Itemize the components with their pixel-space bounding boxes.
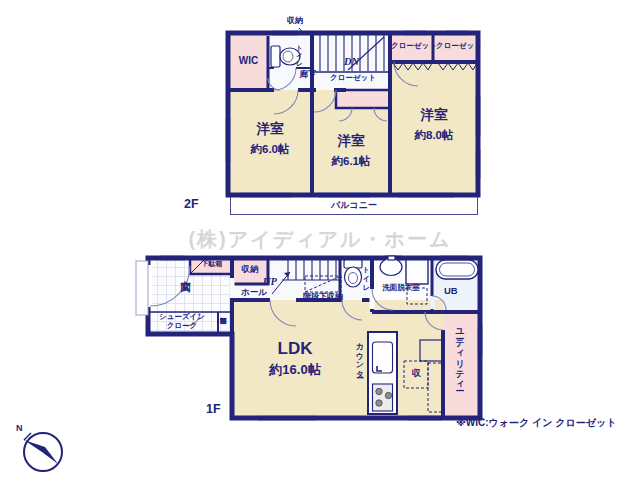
toilet-1f-label: トイレ	[362, 261, 370, 288]
stairs-dn-label: DN	[344, 56, 359, 68]
watermark: (株)アイディアル・ホーム	[170, 226, 470, 253]
staircase-1f	[272, 260, 341, 294]
compass-icon	[24, 433, 62, 471]
counter-label: カウンター	[354, 337, 363, 373]
shoe-cabinet-label: 下駄箱	[191, 260, 233, 268]
hall-label: ホール	[233, 288, 275, 298]
storage-2f-label: 収納	[278, 17, 312, 26]
entrance-label: 玄関	[180, 273, 191, 275]
bath-label: UB	[444, 286, 458, 297]
porch-step	[136, 261, 148, 315]
floor2-label: 2F	[184, 197, 199, 211]
bedroom-left-name: 洋室	[228, 121, 312, 136]
bedroom-center-size: 約6.1帖	[312, 155, 390, 168]
storage-small-label: 収	[405, 368, 427, 378]
balcony-label: バルコニー	[300, 200, 408, 210]
under-stair-storage-label: 階段下収納	[293, 293, 353, 302]
shoes-closet-label-2: クローク	[148, 322, 216, 330]
utility-label: ユーティリティー	[455, 323, 465, 385]
equipment-outlines	[404, 259, 443, 412]
closet-right-1-label: クローゼット	[391, 42, 432, 50]
kitchen-icon	[368, 332, 397, 414]
ldk-name: LDK	[250, 339, 340, 358]
bedroom-center-name: 洋室	[312, 133, 390, 148]
walls	[148, 28, 480, 418]
storage-1f-label: 収納	[232, 265, 268, 275]
bedroom-left-size: 約6.0帖	[228, 143, 312, 156]
bedroom-right-size: 約8.0帖	[390, 129, 478, 142]
bathtub-icon	[436, 260, 478, 279]
closet-right-2-label: クローゼット	[436, 42, 477, 50]
wic-footnote: ※WIC:ウォーク イン クローゼット	[456, 417, 616, 428]
hallway-label: 廊下	[290, 70, 326, 80]
folding-door-marks	[393, 63, 477, 70]
floor1-label: 1F	[206, 402, 221, 416]
floorplan-image: 収納 WIC トイレ 廊下 DN クローゼット クローゼット クローゼット 洋室…	[0, 0, 640, 480]
stairs-up-label: UP	[263, 276, 277, 288]
toilet-icon-1f	[344, 260, 362, 287]
closet-hall-label: クローゼット	[329, 74, 377, 82]
washroom-label: 洗面脱衣室	[371, 284, 431, 292]
compass-n-label: N	[16, 423, 23, 433]
toilet-2f-label: トイレ	[296, 40, 303, 65]
wic-label: WIC	[229, 55, 268, 66]
bedroom-right-name: 洋室	[390, 107, 478, 122]
ldk-size: 約16.0帖	[245, 363, 345, 378]
